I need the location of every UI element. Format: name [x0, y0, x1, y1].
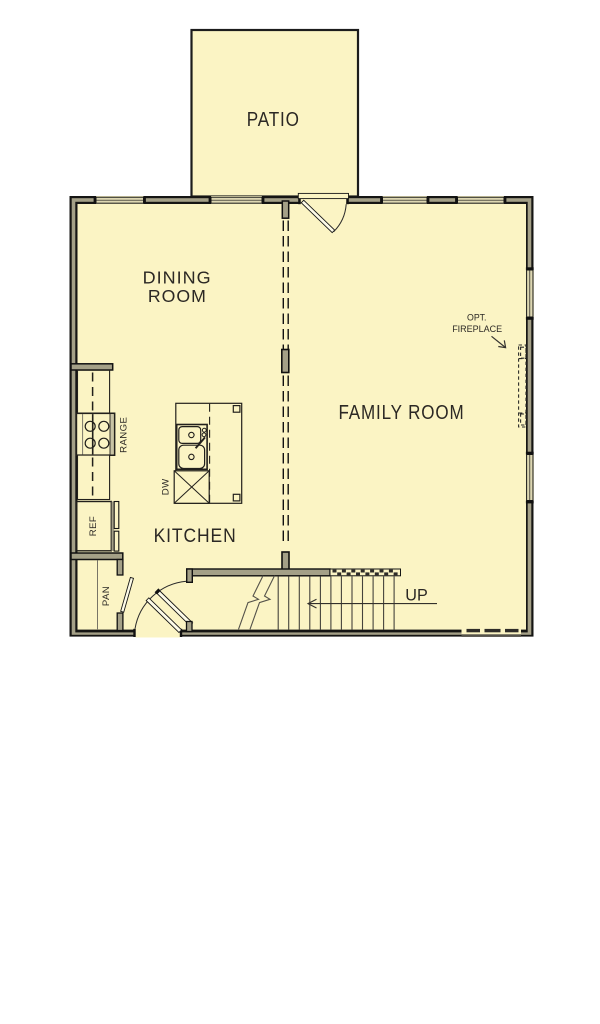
svg-text:KITCHEN: KITCHEN [154, 526, 237, 547]
svg-text:FAMILY ROOM: FAMILY ROOM [339, 402, 465, 424]
svg-text:FIREPLACE: FIREPLACE [452, 324, 502, 335]
svg-text:RANGE: RANGE [118, 417, 129, 453]
svg-text:OPT.: OPT. [467, 312, 487, 323]
svg-text:DINING: DINING [143, 268, 212, 288]
svg-text:PATIO: PATIO [247, 108, 300, 131]
svg-text:REF: REF [88, 516, 99, 536]
svg-text:DW: DW [161, 478, 172, 495]
svg-text:UP: UP [405, 585, 428, 604]
svg-text:PAN: PAN [101, 586, 112, 606]
svg-text:ROOM: ROOM [148, 286, 207, 306]
